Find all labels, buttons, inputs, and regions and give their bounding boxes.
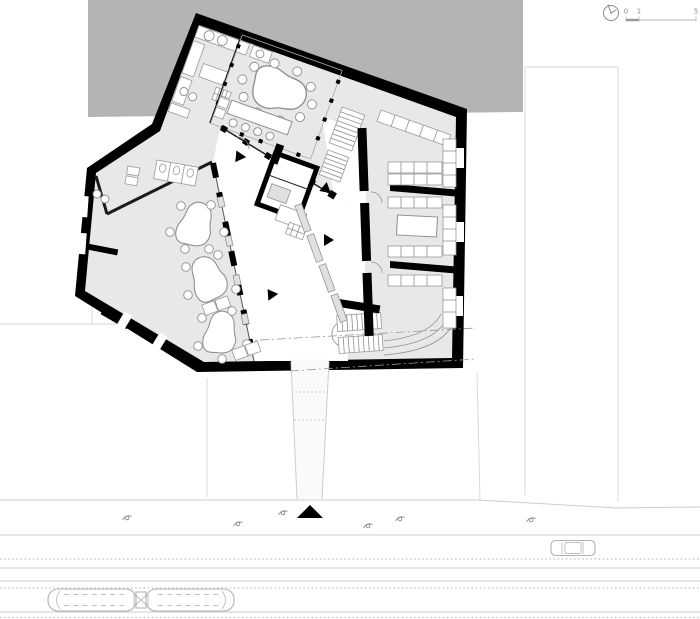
sink-icon	[93, 190, 101, 198]
tram	[48, 589, 234, 611]
sidewalk-edge	[0, 500, 700, 508]
car	[551, 541, 595, 556]
tram-car	[48, 589, 136, 611]
north-indicator-icon	[604, 5, 619, 21]
floor-plan-drawing: 0 1 5	[0, 0, 700, 619]
entrance-arrow	[297, 505, 323, 518]
pedestrian	[234, 522, 243, 526]
island-table	[397, 215, 438, 237]
pedestrian	[123, 516, 132, 520]
pedestrian	[279, 511, 288, 515]
pedestrian	[396, 517, 405, 521]
pedestrians	[123, 511, 536, 528]
scale-bar: 0 1 5	[624, 8, 698, 22]
scale-label-5: 5	[694, 8, 698, 16]
window	[76, 233, 86, 255]
scale-label-0: 0	[624, 8, 628, 16]
window	[78, 196, 88, 218]
tram-car	[146, 589, 234, 611]
sink-icon	[101, 195, 109, 203]
pedestrian	[527, 518, 536, 522]
scale-label-1: 1	[637, 8, 641, 16]
floor-plan-canvas: 0 1 5	[0, 0, 700, 619]
pedestrian	[364, 524, 373, 528]
